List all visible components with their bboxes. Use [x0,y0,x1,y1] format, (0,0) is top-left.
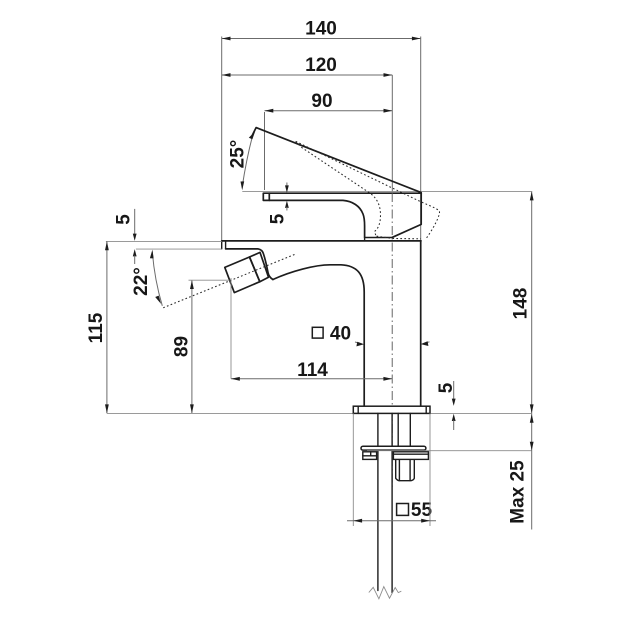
svg-text:Max 25: Max 25 [508,460,529,524]
svg-text:148: 148 [511,288,532,320]
svg-text:114: 114 [297,360,328,381]
svg-text:90: 90 [311,91,332,112]
svg-text:55: 55 [411,500,433,521]
svg-text:22°: 22° [131,267,152,296]
svg-text:40: 40 [330,324,351,345]
svg-text:89: 89 [172,336,193,357]
svg-text:140: 140 [305,19,337,40]
svg-text:5: 5 [268,213,289,224]
svg-text:25°: 25° [228,140,249,169]
svg-text:115: 115 [86,312,107,343]
svg-text:5: 5 [114,214,135,225]
svg-text:120: 120 [305,55,337,76]
